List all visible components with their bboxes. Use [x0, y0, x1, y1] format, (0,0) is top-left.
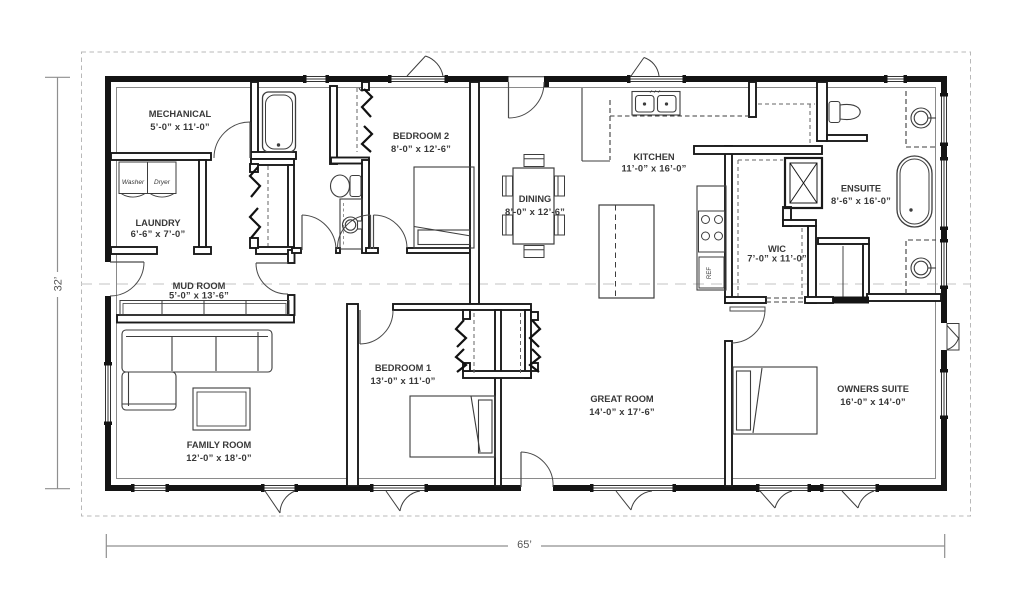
- svg-text:BEDROOM 1: BEDROOM 1: [375, 363, 431, 373]
- svg-text:MECHANICAL: MECHANICAL: [149, 109, 212, 119]
- svg-text:Dryer: Dryer: [154, 179, 171, 186]
- svg-text:8’-0” x 12’-6”: 8’-0” x 12’-6”: [505, 206, 565, 217]
- svg-text:7’-0” x 11’-0”: 7’-0” x 11’-0”: [747, 253, 807, 264]
- svg-text:32’: 32’: [53, 277, 65, 292]
- svg-text:13’-0” x 11’-0”: 13’-0” x 11’-0”: [370, 375, 435, 386]
- svg-text:ENSUITE: ENSUITE: [841, 184, 881, 194]
- svg-text:6’-6” x 7’-0”: 6’-6” x 7’-0”: [131, 228, 186, 239]
- svg-text:16’-0” x 14’-0”: 16’-0” x 14’-0”: [840, 396, 906, 407]
- svg-text:BEDROOM 2: BEDROOM 2: [393, 131, 449, 141]
- svg-text:Washer: Washer: [122, 179, 145, 186]
- svg-text:5’-0” x 13’-6”: 5’-0” x 13’-6”: [169, 290, 229, 301]
- svg-text:5’-0” x 11’-0”: 5’-0” x 11’-0”: [150, 121, 210, 132]
- svg-text:FAMILY ROOM: FAMILY ROOM: [187, 440, 252, 450]
- svg-text:11’-0” x 16’-0”: 11’-0” x 16’-0”: [621, 163, 686, 174]
- svg-text:8’-6” x 16’-0”: 8’-6” x 16’-0”: [831, 195, 891, 206]
- svg-text:12’-0” x 18’-0”: 12’-0” x 18’-0”: [186, 452, 252, 463]
- svg-text:DINING: DINING: [519, 194, 552, 204]
- svg-text:REF: REF: [707, 267, 713, 279]
- svg-text:8’-0” x 12’-6”: 8’-0” x 12’-6”: [391, 143, 451, 154]
- svg-text:14’-0” x 17’-6”: 14’-0” x 17’-6”: [589, 406, 655, 417]
- svg-text:OWNERS SUITE: OWNERS SUITE: [837, 384, 909, 394]
- svg-text:LAUNDRY: LAUNDRY: [135, 218, 181, 228]
- svg-text:KITCHEN: KITCHEN: [633, 152, 675, 162]
- svg-text:GREAT ROOM: GREAT ROOM: [590, 394, 654, 404]
- svg-text:65’: 65’: [517, 539, 532, 551]
